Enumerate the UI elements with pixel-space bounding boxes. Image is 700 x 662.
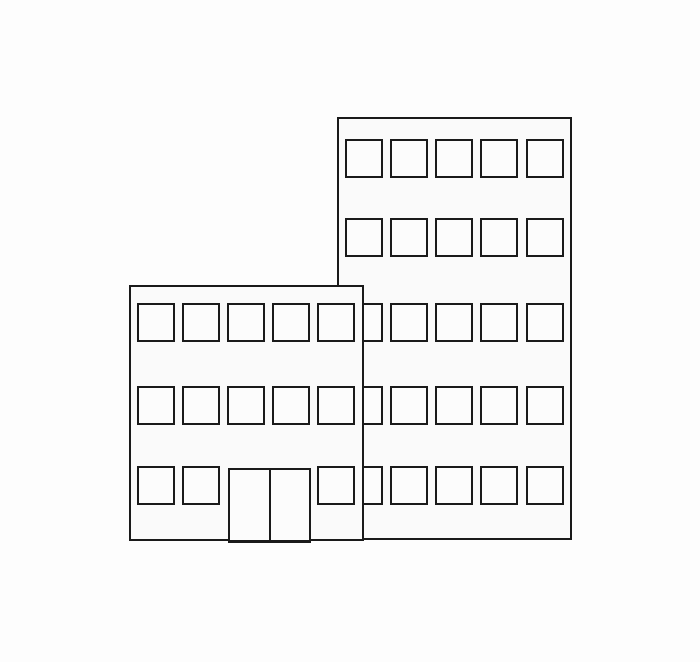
window xyxy=(435,386,473,425)
window xyxy=(480,386,518,425)
window xyxy=(390,386,428,425)
window xyxy=(345,139,383,178)
window xyxy=(227,303,265,342)
window xyxy=(345,218,383,257)
window xyxy=(137,303,175,342)
window xyxy=(390,139,428,178)
tall-building xyxy=(337,117,572,540)
buildings-illustration xyxy=(0,0,700,662)
window xyxy=(526,218,564,257)
window xyxy=(317,303,355,342)
window xyxy=(182,386,220,425)
window xyxy=(435,466,473,505)
window xyxy=(390,303,428,342)
window xyxy=(390,218,428,257)
window xyxy=(317,386,355,425)
window xyxy=(227,386,265,425)
door-divider xyxy=(269,470,271,540)
window xyxy=(272,386,310,425)
window xyxy=(435,139,473,178)
window xyxy=(526,386,564,425)
window xyxy=(435,303,473,342)
window xyxy=(137,466,175,505)
double-door xyxy=(228,468,311,543)
window xyxy=(435,218,473,257)
window xyxy=(526,303,564,342)
window xyxy=(480,466,518,505)
short-building xyxy=(129,285,364,541)
window xyxy=(317,466,355,505)
window xyxy=(182,303,220,342)
window xyxy=(480,218,518,257)
window xyxy=(480,303,518,342)
window xyxy=(526,139,564,178)
window xyxy=(182,466,220,505)
window xyxy=(390,466,428,505)
window xyxy=(526,466,564,505)
window xyxy=(480,139,518,178)
window xyxy=(272,303,310,342)
window xyxy=(137,386,175,425)
